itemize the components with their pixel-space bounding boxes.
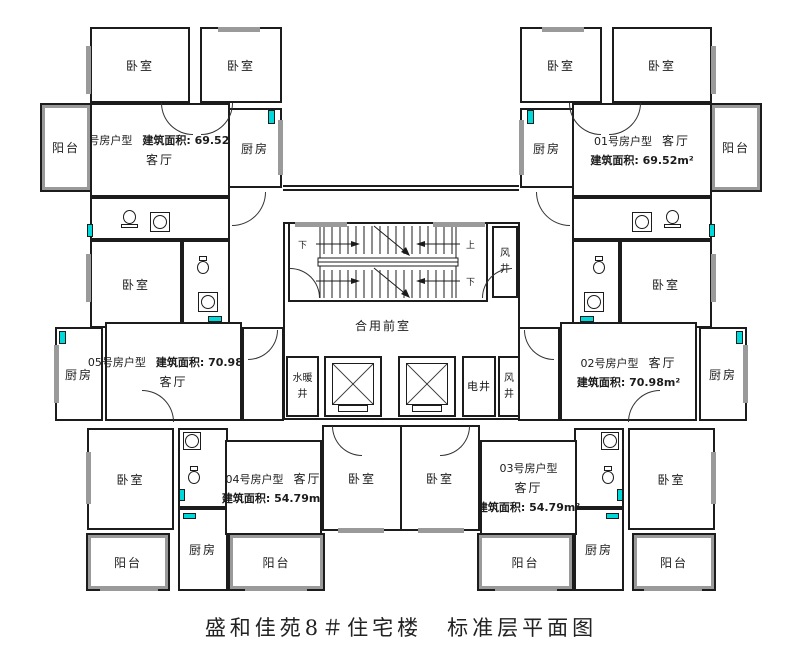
window-glass: [86, 254, 91, 302]
floor-plan-canvas: 卧室 卧室 06号房户型建筑面积: 69.52m² 客厅 厨房 阳台 卧室 卧室…: [0, 0, 802, 667]
room-label: 卧室: [348, 470, 376, 487]
toilet-icon: [187, 466, 201, 486]
room-label: 厨房: [241, 140, 269, 157]
window-cyan: [59, 331, 66, 344]
toilet-icon: [196, 256, 210, 276]
door-arc-entry-01: [536, 192, 570, 226]
stairs-drawing: [290, 224, 486, 300]
room-label: 客厅: [146, 151, 174, 168]
window-glass: [418, 528, 464, 533]
sink-icon: [150, 212, 170, 232]
room-kitchen-03: 厨房: [574, 508, 624, 591]
sink-icon: [632, 212, 652, 232]
stair-up-label: 上: [466, 238, 475, 251]
room-living-03: 03号房户型 客厅 建筑面积: 54.79m²: [480, 440, 577, 535]
unit-label-02: 02号房户型客厅 建筑面积: 70.98m²: [577, 354, 680, 390]
unit-name: 02号房户型: [580, 355, 638, 371]
unit-name: 03号房户型: [500, 460, 558, 476]
unit-area: 建筑面积: 69.52m²: [590, 152, 693, 168]
window-glass: [711, 46, 716, 94]
room-label: 厨房: [585, 541, 613, 558]
elevator-door-sill: [412, 405, 442, 412]
unit-label-03: 03号房户型 客厅 建筑面积: 54.79m²: [477, 460, 580, 515]
room-label: 客厅: [293, 470, 321, 487]
room-label: 卧室: [648, 57, 676, 74]
window-glass: [338, 528, 384, 533]
room-label: 卧室: [126, 57, 154, 74]
window-glass: [644, 586, 702, 591]
room-bedroom-01a: 卧室: [612, 27, 712, 103]
sink-icon: [198, 292, 218, 312]
room-kitchen-04: 厨房: [178, 508, 228, 591]
window-glass: [519, 120, 524, 175]
room-label: 客厅: [662, 132, 690, 149]
elevator-1: [324, 356, 382, 417]
window-cyan: [617, 489, 623, 501]
room-balcony-01: 阳台: [710, 103, 762, 192]
room-label: 厨房: [533, 140, 561, 157]
room-label: 阳台: [114, 554, 142, 571]
room-bedroom-06c: 卧室: [90, 240, 182, 328]
elevator-door-sill: [338, 405, 368, 412]
room-label: 客厅: [514, 479, 542, 496]
stair-down-label-2: 下: [466, 275, 475, 288]
room-label: 阳台: [722, 139, 750, 156]
room-bedroom-01c: 卧室: [620, 240, 712, 328]
window-glass: [711, 452, 716, 504]
connector-wall: [283, 185, 519, 191]
shaft-label: 电井: [467, 378, 491, 396]
unit-label-04: 04号房户型客厅 建筑面积: 54.79m²: [222, 470, 325, 506]
unit-area: 建筑面积: 54.79m²: [222, 490, 325, 506]
window-cyan: [736, 331, 743, 344]
room-bedroom-04: 卧室: [322, 425, 402, 531]
door-arc-entry-06: [232, 192, 266, 226]
room-bedroom-01b: 卧室: [520, 27, 602, 103]
unit-name: 05号房户型: [88, 354, 146, 370]
shaft-plumbing: 水暖井: [286, 356, 319, 417]
window-cyan: [709, 224, 715, 237]
room-balcony-05: 阳台: [86, 533, 170, 591]
window-glass: [278, 120, 283, 175]
room-living-02: 02号房户型客厅 建筑面积: 70.98m²: [560, 322, 697, 421]
window-cyan: [580, 316, 594, 322]
window-cyan: [268, 110, 275, 124]
window-glass: [54, 345, 59, 403]
room-label: 阳台: [52, 139, 80, 156]
elevator-cab-icon: [406, 363, 448, 405]
room-balcony-06: 阳台: [40, 103, 92, 192]
unit-area: 建筑面积: 70.98m²: [577, 374, 680, 390]
unit-area: 建筑面积: 54.79m²: [477, 499, 580, 515]
shaft-electrical: 电井: [462, 356, 496, 417]
room-label: 厨房: [189, 541, 217, 558]
room-label: 客厅: [159, 373, 187, 390]
window-glass: [743, 345, 748, 403]
window-glass: [295, 222, 347, 227]
room-label: 卧室: [122, 276, 150, 293]
window-glass: [711, 254, 716, 302]
sink-icon: [601, 432, 619, 450]
room-label: 阳台: [511, 554, 539, 571]
toilet-icon: [601, 466, 615, 486]
shaft-wind-bottom: 风 井: [498, 356, 520, 417]
drawing-title: 盛和佳苑8＃住宅楼 标准层平面图: [0, 612, 802, 642]
window-cyan: [183, 513, 196, 519]
sink-icon: [183, 432, 201, 450]
room-living-05: 05号房户型建筑面积: 70.98m² 客厅: [105, 322, 242, 421]
room-bedroom-06b: 卧室: [200, 27, 282, 103]
elevator-2: [398, 356, 456, 417]
window-cyan: [527, 110, 534, 124]
washbasin-icon: [123, 210, 136, 228]
window-glass: [86, 46, 91, 94]
room-label: 阳台: [262, 554, 290, 571]
shaft-label: 水暖井: [288, 371, 317, 403]
room-balcony-03: 阳台: [477, 533, 574, 591]
toilet-icon: [592, 256, 606, 276]
unit-label-01: 01号房户型客厅 建筑面积: 69.52m²: [590, 132, 693, 168]
unit-name: 04号房户型: [225, 471, 283, 487]
room-bedroom-06a: 卧室: [90, 27, 190, 103]
window-cyan: [208, 316, 222, 322]
window-glass: [495, 586, 557, 591]
stair-down-label: 下: [298, 238, 307, 251]
window-glass: [542, 27, 584, 32]
window-glass: [433, 222, 485, 227]
unit-name: 01号房户型: [594, 133, 652, 149]
room-label: 卧室: [426, 470, 454, 487]
elevator-cab-icon: [332, 363, 374, 405]
window-cyan: [606, 513, 619, 519]
lobby-label: 合用前室: [323, 317, 443, 334]
room-bedroom-02: 卧室: [628, 428, 715, 530]
window-glass: [218, 27, 260, 32]
room-balcony-02: 阳台: [632, 533, 716, 591]
unit-label-06: 06号房户型建筑面积: 69.52m² 客厅: [74, 132, 245, 168]
room-label: 卧室: [227, 57, 255, 74]
unit-label-05: 05号房户型建筑面积: 70.98m² 客厅: [88, 354, 259, 390]
window-glass: [245, 586, 307, 591]
window-cyan: [87, 224, 93, 237]
washbasin-icon: [666, 210, 679, 228]
room-bath-06: [182, 240, 230, 332]
room-label: 卧室: [116, 471, 144, 488]
shaft-label: 风 井: [504, 371, 514, 403]
room-label: 卧室: [657, 471, 685, 488]
room-label: 卧室: [547, 57, 575, 74]
room-label: 卧室: [652, 276, 680, 293]
room-bedroom-05: 卧室: [87, 428, 174, 530]
room-label: 厨房: [709, 366, 737, 383]
room-label: 阳台: [660, 554, 688, 571]
room-label: 客厅: [648, 354, 676, 371]
sink-icon: [584, 292, 604, 312]
window-cyan: [179, 489, 185, 501]
window-glass: [86, 452, 91, 504]
window-glass: [100, 586, 158, 591]
room-living-04: 04号房户型客厅 建筑面积: 54.79m²: [225, 440, 322, 535]
room-balcony-04: 阳台: [228, 533, 325, 591]
